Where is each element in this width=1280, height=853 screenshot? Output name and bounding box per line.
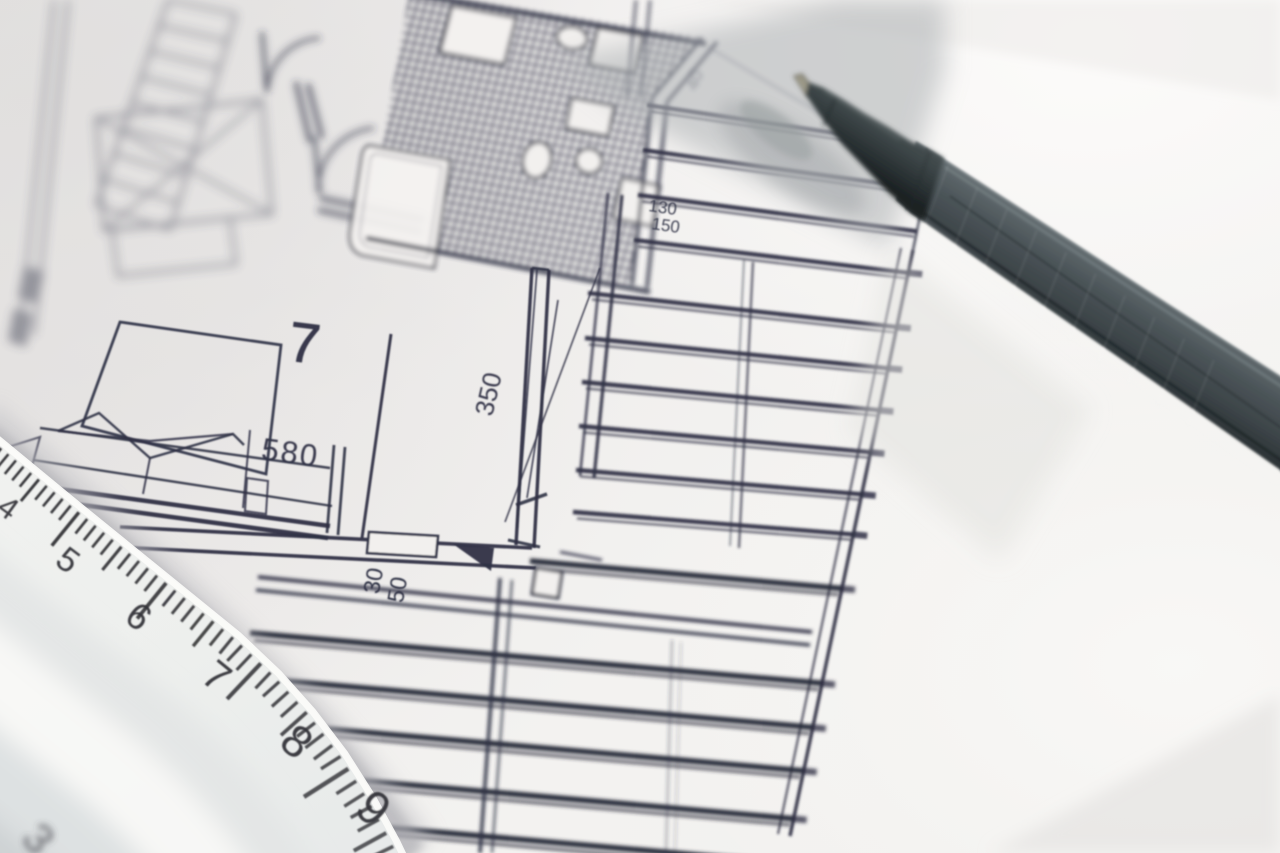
svg-text:150: 150 [650,214,681,237]
